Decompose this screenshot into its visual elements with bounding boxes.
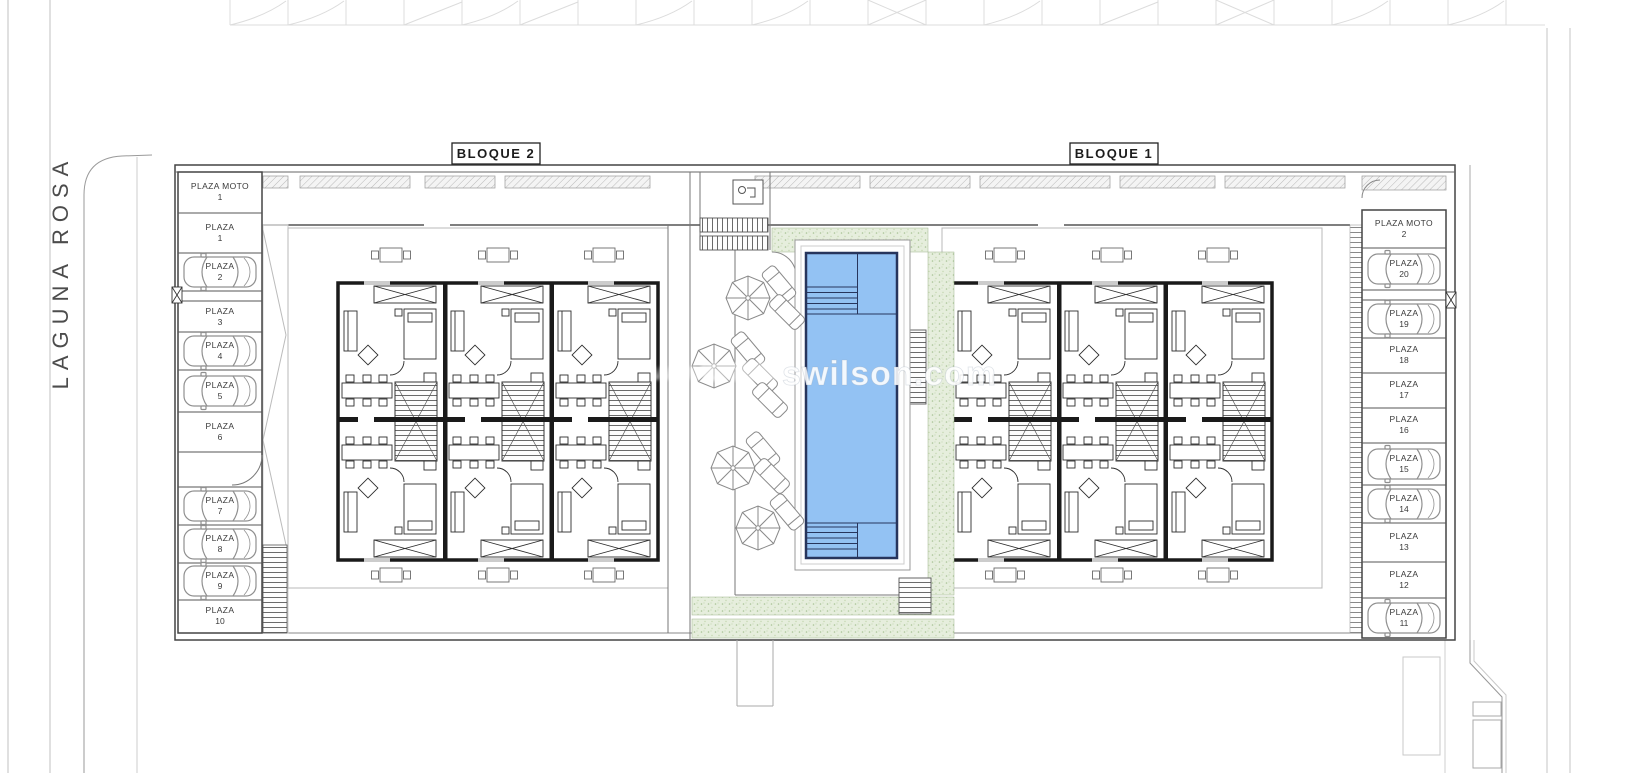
svg-text:PLAZA: PLAZA: [1390, 308, 1419, 318]
svg-text:PLAZA: PLAZA: [206, 380, 235, 390]
green-strip: [692, 619, 954, 638]
svg-text:16: 16: [1399, 425, 1409, 435]
top-facade-strip: [230, 0, 1545, 25]
svg-text:PLAZA MOTO: PLAZA MOTO: [1375, 218, 1433, 228]
svg-text:1: 1: [218, 233, 223, 243]
watermark-prefix: www.: [651, 356, 719, 386]
svg-text:PLAZA: PLAZA: [206, 533, 235, 543]
svg-text:12: 12: [1399, 580, 1409, 590]
green-strip: [928, 252, 954, 595]
parking-stall: PLAZA 17: [1390, 379, 1419, 400]
svg-text:PLAZA: PLAZA: [1390, 344, 1419, 354]
building-block-1: [942, 228, 1322, 588]
svg-text:15: 15: [1399, 464, 1409, 474]
svg-text:4: 4: [218, 351, 223, 361]
svg-text:20: 20: [1399, 269, 1409, 279]
site-plan-page: LAGUNA ROSA: [0, 0, 1638, 773]
site-plan-drawing: LAGUNA ROSA: [0, 0, 1638, 773]
street-label: LAGUNA ROSA: [48, 155, 73, 390]
svg-text:11: 11: [1400, 618, 1409, 628]
parking-stall: PLAZA 10: [206, 605, 235, 626]
svg-text:PLAZA: PLAZA: [206, 421, 235, 431]
street-laguna-rosa: [8, 0, 152, 773]
svg-text:17: 17: [1399, 390, 1409, 400]
svg-text:PLAZA: PLAZA: [206, 261, 235, 271]
parasol-icon: [711, 446, 755, 490]
svg-text:PLAZA: PLAZA: [206, 306, 235, 316]
parking-stall: PLAZA 3: [206, 306, 235, 327]
svg-text:7: 7: [218, 506, 223, 516]
svg-text:2: 2: [1402, 229, 1407, 239]
svg-text:PLAZA: PLAZA: [1390, 569, 1419, 579]
pergola-bars: [263, 176, 1446, 190]
svg-text:3: 3: [218, 317, 223, 327]
door-arc-icon: [232, 455, 262, 485]
svg-text:PLAZA: PLAZA: [1390, 531, 1419, 541]
svg-text:PLAZA: PLAZA: [206, 495, 235, 505]
svg-text:1: 1: [218, 192, 223, 202]
svg-text:PLAZA: PLAZA: [1390, 379, 1419, 389]
block1-label: BLOQUE 1: [1075, 146, 1153, 161]
parking-stall: PLAZA MOTO 1: [191, 181, 249, 202]
parasol-icon: [736, 506, 780, 550]
parking-column-left: PLAZA MOTO 1 PLAZA 1 PLAZA 2 PLAZA 3 PLA…: [172, 172, 287, 633]
svg-text:PLAZA: PLAZA: [1390, 607, 1419, 617]
parking-stall: PLAZA 1: [206, 222, 235, 243]
svg-text:PLAZA: PLAZA: [1390, 453, 1419, 463]
watermark-text: swilson.com: [782, 355, 997, 393]
svg-text:PLAZA: PLAZA: [206, 605, 235, 615]
watermark: www. swilson.com: [651, 355, 997, 393]
svg-text:2: 2: [218, 272, 223, 282]
svg-text:PLAZA MOTO: PLAZA MOTO: [191, 181, 249, 191]
svg-text:18: 18: [1399, 355, 1409, 365]
parking-stall: PLAZA MOTO 2: [1375, 218, 1433, 239]
building-block-2: [288, 228, 668, 588]
svg-text:PLAZA: PLAZA: [206, 570, 235, 580]
svg-text:19: 19: [1399, 319, 1409, 329]
parking-stall: PLAZA 18: [1390, 344, 1419, 365]
west-stairs-icon: [263, 545, 287, 633]
svg-text:10: 10: [215, 616, 225, 626]
entrance-stairs-icon: [700, 218, 768, 250]
svg-text:PLAZA: PLAZA: [1390, 258, 1419, 268]
svg-text:6: 6: [218, 432, 223, 442]
parking-stall: PLAZA 6: [206, 421, 235, 442]
parasol-icon: [726, 276, 770, 320]
parking-stall: PLAZA 16: [1390, 414, 1419, 435]
parking-column-right: PLAZA MOTO 2 PLAZA 20 PLAZA 19 PLAZA 18 …: [1362, 180, 1456, 638]
svg-text:PLAZA: PLAZA: [1390, 493, 1419, 503]
parking-stall: PLAZA 12: [1390, 569, 1419, 590]
svg-text:PLAZA: PLAZA: [206, 222, 235, 232]
south-walkway: [737, 640, 773, 706]
elevator-icon: [733, 180, 763, 204]
svg-text:5: 5: [218, 391, 223, 401]
svg-text:PLAZA: PLAZA: [1390, 414, 1419, 424]
svg-text:13: 13: [1399, 542, 1409, 552]
block1-label-box: BLOQUE 1: [1070, 143, 1158, 164]
svg-text:9: 9: [218, 581, 223, 591]
pool-courtyard: [668, 172, 954, 706]
block2-label-box: BLOQUE 2: [452, 143, 540, 164]
svg-text:PLAZA: PLAZA: [206, 340, 235, 350]
parking-stall: PLAZA 13: [1390, 531, 1419, 552]
utility-box-icon: [1446, 292, 1456, 308]
block2-label: BLOQUE 2: [457, 146, 535, 161]
right-road: [1403, 28, 1570, 773]
svg-text:14: 14: [1399, 504, 1409, 514]
utility-box-icon: [172, 287, 182, 303]
lower-stairs-icon: [899, 578, 931, 614]
swimming-pool: [795, 240, 910, 570]
svg-text:8: 8: [218, 544, 223, 554]
